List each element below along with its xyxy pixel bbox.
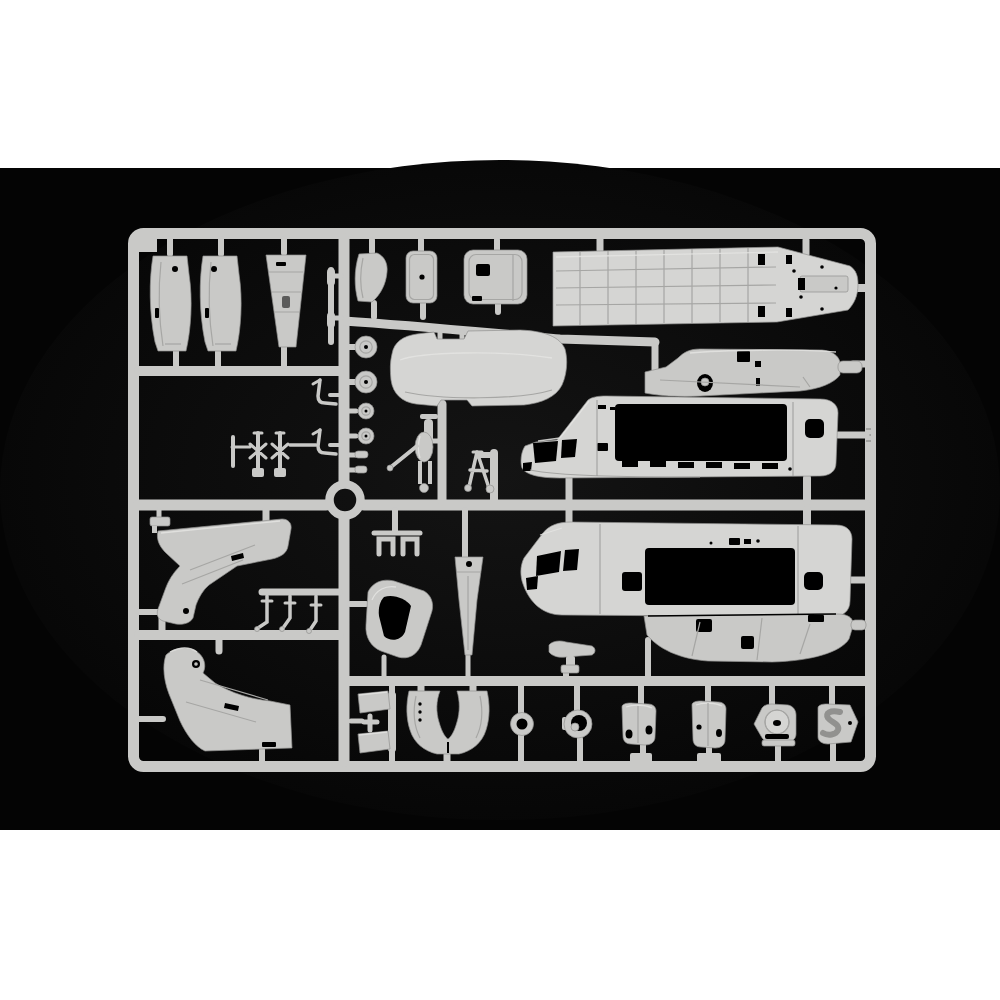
- part-cabin-roof-panel: [390, 330, 566, 406]
- part-cabin-floor-panel: [553, 247, 858, 326]
- part-side-panel-b: [200, 256, 241, 351]
- white-band-bottom: [0, 830, 1000, 1000]
- part-ring-small: [511, 713, 534, 736]
- part-hub-bit-a: [355, 451, 368, 458]
- part-wheel-large-b: [355, 371, 377, 393]
- part-clamp-blocks: [358, 691, 396, 753]
- part-access-panel: [406, 251, 437, 303]
- part-side-panel-a: [150, 256, 191, 351]
- white-band-top: [0, 0, 1000, 168]
- corner-chunk: [137, 239, 157, 252]
- part-s-duct-plate: [818, 704, 858, 744]
- part-wheel-large-a: [355, 336, 377, 358]
- part-wheel-small-b: [358, 428, 374, 444]
- sprue-photo: [0, 0, 1000, 1000]
- part-fairing-panel-b: [692, 701, 726, 748]
- part-hub-bit-b: [355, 466, 367, 473]
- part-wheel-small-a: [358, 403, 374, 419]
- part-fairing-panel-a: [622, 703, 656, 745]
- part-sliding-door-panel: [464, 250, 527, 304]
- photo-page: [0, 0, 1000, 1000]
- part-fuselage-half-lower: [521, 522, 852, 617]
